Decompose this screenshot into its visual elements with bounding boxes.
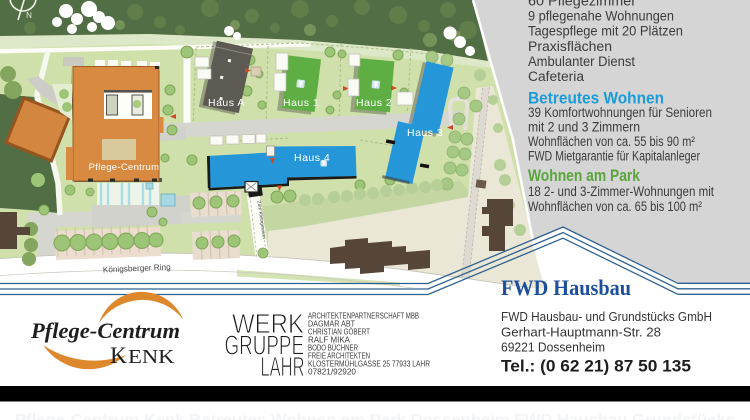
svg-text:Praxisflächen: Praxisflächen bbox=[528, 39, 612, 54]
svg-text:07821/92920: 07821/92920 bbox=[308, 368, 357, 377]
svg-text:FWD Hausbau- und Grundstücks G: FWD Hausbau- und Grundstücks GmbH bbox=[501, 309, 712, 324]
svg-text:FWD Mietgarantie für Kapitalan: FWD Mietgarantie für Kapitalanleger bbox=[528, 149, 700, 164]
svg-text:Cafeteria: Cafeteria bbox=[528, 69, 584, 84]
svg-text:18 2- und 3-Zimmer-Wohnungen: 18 2- und 3-Zimmer-Wohnungen mit bbox=[528, 184, 714, 199]
svg-text:Wohnflächen von ca. 55 bis 90: Wohnflächen von ca. 55 bis 90 m² bbox=[528, 134, 695, 149]
svg-text:K: K bbox=[110, 343, 127, 369]
svg-text:Wohnflächen von ca. 65 bis 100: Wohnflächen von ca. 65 bis 100 m² bbox=[528, 199, 702, 214]
svg-text:Tel.: (0 62 21) 87 50 135: Tel.: (0 62 21) 87 50 135 bbox=[501, 358, 691, 376]
svg-text:9 pflegenahe Wohnungen: 9 pflegenahe Wohnungen bbox=[528, 9, 674, 24]
svg-text:LAHR: LAHR bbox=[261, 351, 305, 382]
svg-text:ENK: ENK bbox=[128, 347, 175, 368]
svg-text:FWD Hausbau: FWD Hausbau bbox=[501, 275, 631, 300]
svg-text:Tagespflege mit 20 Plätzen: Tagespflege mit 20 Plätzen bbox=[528, 24, 683, 39]
svg-text:69221 Dossenheim: 69221 Dossenheim bbox=[501, 340, 605, 355]
svg-text:Pflege-Centrum: Pflege-Centrum bbox=[30, 318, 180, 343]
svg-text:mit 2 und 3 Zimmern: mit 2 und 3 Zimmern bbox=[528, 120, 640, 135]
svg-text:39 Komfortwohnungen für Senior: 39 Komfortwohnungen für Senioren bbox=[528, 105, 712, 120]
svg-text:Ambulanter Dienst: Ambulanter Dienst bbox=[528, 54, 635, 69]
svg-text:Gerhart-Hauptmann-Str. 28: Gerhart-Hauptmann-Str. 28 bbox=[501, 324, 661, 339]
svg-text:Pflege-Centrum Kenk Betreutes: Pflege-Centrum Kenk Betreutes Wohnen am … bbox=[15, 412, 735, 420]
svg-text:60 Pflegezimmer: 60 Pflegezimmer bbox=[528, 0, 637, 9]
svg-text:Wohnen am Park: Wohnen am Park bbox=[528, 166, 640, 185]
